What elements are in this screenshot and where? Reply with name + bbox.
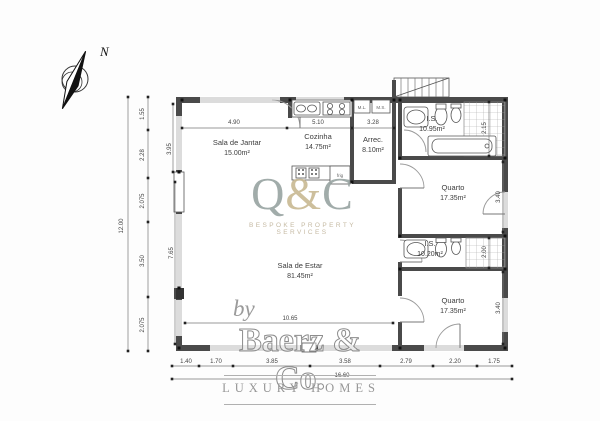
dimension-tick	[502, 343, 505, 346]
dimension-tick	[502, 161, 505, 164]
dimension-tick	[432, 365, 435, 368]
dimension-label: 3.40	[496, 191, 502, 203]
room-label: Quarto	[442, 296, 465, 305]
dimension-tick	[172, 103, 175, 106]
dimension-tick	[476, 365, 479, 368]
dimension-label: 3.40	[496, 302, 502, 314]
branding-rule-top	[224, 375, 376, 376]
room-area-label: 15.00m²	[224, 150, 250, 157]
room-area-label: 10.20m²	[417, 251, 443, 258]
room-area-label: 14.75m²	[305, 144, 331, 151]
room-area-label: 17.35m²	[440, 308, 466, 315]
room-area-label: 17.35m²	[440, 195, 466, 202]
dimension-tick	[286, 127, 289, 130]
dimension-label: 3.50	[140, 255, 146, 267]
dimension-label: 2.15	[482, 122, 488, 134]
floor-plan-page: N	[0, 0, 600, 421]
appliance-label: frig	[337, 173, 344, 178]
dimension-label: 1.55	[140, 108, 146, 120]
dimension-tick	[392, 322, 395, 325]
dimension-tick	[127, 96, 130, 99]
room-area-label: 10.95m²	[419, 126, 445, 133]
dimension-tick	[171, 378, 174, 381]
room-label: Cozinha	[304, 132, 332, 141]
dimension-label: 3.28	[367, 120, 379, 126]
dimension-label: 5.10	[312, 120, 324, 126]
room-label: I.S.	[424, 239, 435, 248]
dimension-tick	[147, 221, 150, 224]
room-area-label: 8.10m²	[362, 147, 384, 154]
dimension-tick	[393, 127, 396, 130]
dimension-tick	[488, 155, 491, 158]
dimension-tick	[488, 267, 491, 270]
room-label: Sala de Jantar	[213, 138, 262, 147]
dimension-tick	[184, 322, 187, 325]
north-arrow-icon: N	[57, 44, 110, 111]
dimension-tick	[181, 127, 184, 130]
room-label: Quarto	[442, 183, 465, 192]
dimension-tick	[171, 365, 174, 368]
dimension-label: 2.20	[449, 359, 461, 365]
room-label: Sala de Estar	[277, 261, 323, 270]
dimension-tick	[511, 378, 514, 381]
dimension-tick	[351, 127, 354, 130]
dimension-label: 12.00	[119, 218, 125, 234]
dimension-tick	[147, 177, 150, 180]
dimension-tick	[147, 129, 150, 132]
dimension-tick	[174, 181, 177, 184]
compass-north-label: N	[99, 44, 110, 59]
branding-tagline: LUXURY HOMES	[220, 381, 382, 396]
room-area-label: 81.45m²	[287, 273, 313, 280]
dimension-label: 2.075	[140, 317, 146, 333]
dimension-tick	[511, 365, 514, 368]
dimension-label: 2.075	[140, 193, 146, 209]
branding-by: by	[233, 296, 255, 322]
dimension-label: 2.28	[140, 149, 146, 161]
dimension-tick	[198, 365, 201, 368]
dimension-label: 2.79	[400, 359, 412, 365]
dimension-tick	[488, 101, 491, 104]
dimension-tick	[502, 271, 505, 274]
dimension-tick	[488, 237, 491, 240]
dimension-label: 1.40	[180, 359, 192, 365]
dimension-tick	[127, 350, 130, 353]
stairs	[394, 78, 449, 97]
appliance-label: M.S.	[376, 105, 385, 110]
dimension-label: 2.00	[482, 246, 488, 258]
dimension-tick	[147, 96, 150, 99]
dimension-label: 1.75	[488, 359, 500, 365]
appliance-label: M.L.	[358, 105, 367, 110]
dimension-label: 3.95	[167, 143, 173, 155]
dimension-tick	[147, 296, 150, 299]
dimension-tick	[174, 343, 177, 346]
dimension-label: 4.90	[228, 120, 240, 126]
dimension-tick	[502, 231, 505, 234]
dimension-tick	[147, 350, 150, 353]
branding-rule-bottom	[224, 404, 376, 405]
dimension-label: 7.65	[169, 247, 175, 259]
room-label: I.S.	[426, 114, 437, 123]
room-label: Arrec.	[363, 135, 383, 144]
dimension-tick	[172, 171, 175, 174]
